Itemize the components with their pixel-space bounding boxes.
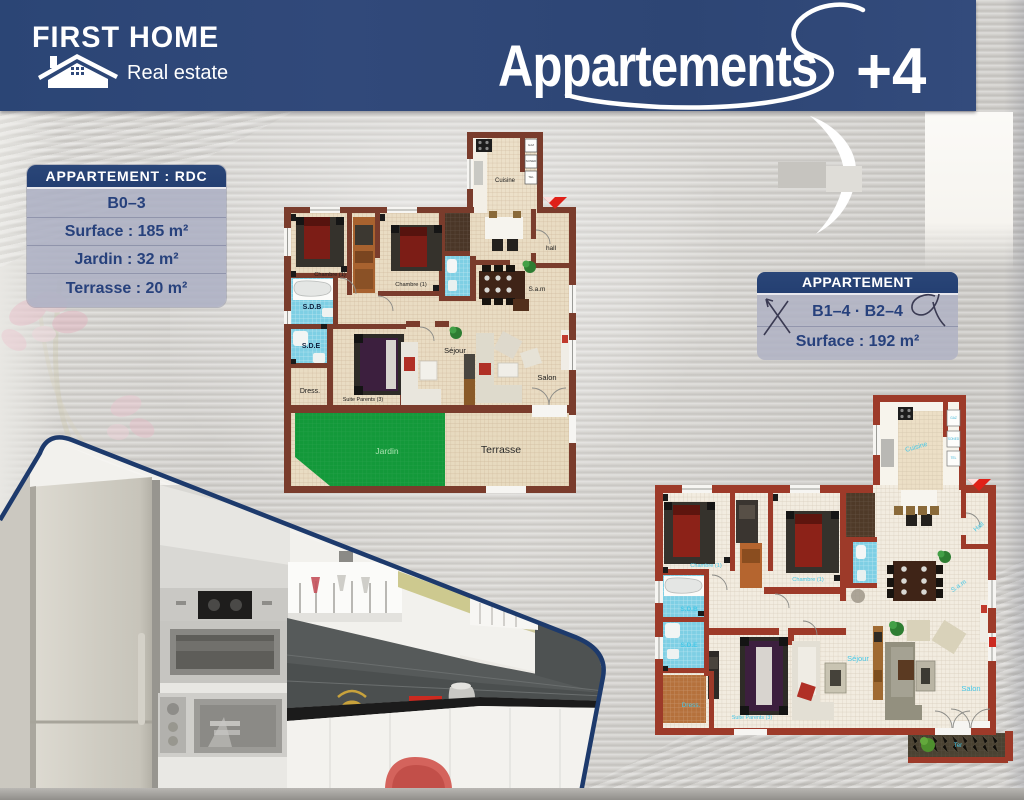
svg-text:Salon: Salon — [537, 373, 556, 382]
svg-text:SONED: SONED — [526, 159, 538, 163]
svg-text:Chambre (1): Chambre (1) — [690, 563, 722, 569]
svg-text:Salon: Salon — [961, 684, 980, 693]
svg-text:S.D.E: S.D.E — [681, 642, 699, 649]
svg-text:GAZ: GAZ — [950, 416, 957, 420]
svg-text:Suite Parents (3): Suite Parents (3) — [343, 397, 384, 403]
svg-text:S.D.B: S.D.B — [303, 304, 322, 311]
svg-text:Chambre (1): Chambre (1) — [792, 577, 824, 583]
svg-text:Séjour: Séjour — [847, 654, 869, 663]
svg-text:Chambre (1): Chambre (1) — [395, 282, 427, 288]
svg-text:Séjour: Séjour — [444, 346, 466, 355]
svg-text:hall: hall — [546, 245, 557, 252]
svg-text:Suite Parents (3): Suite Parents (3) — [732, 715, 773, 721]
svg-text:Cuisine: Cuisine — [495, 178, 516, 184]
svg-text:SONED: SONED — [948, 437, 960, 441]
svg-text:Dress.: Dress. — [682, 702, 701, 709]
svg-text:GAZ: GAZ — [528, 143, 534, 147]
svg-text:S.a.m: S.a.m — [529, 286, 546, 293]
svg-text:S.D.E: S.D.E — [302, 343, 321, 350]
svg-text:Ter: Ter — [954, 743, 962, 749]
svg-text:TEL: TEL — [528, 175, 534, 179]
svg-text:TEL: TEL — [951, 456, 957, 460]
svg-text:Chambre (1): Chambre (1) — [314, 272, 346, 278]
svg-text:S.D.B: S.D.B — [680, 606, 698, 613]
svg-text:Dress.: Dress. — [300, 388, 320, 395]
